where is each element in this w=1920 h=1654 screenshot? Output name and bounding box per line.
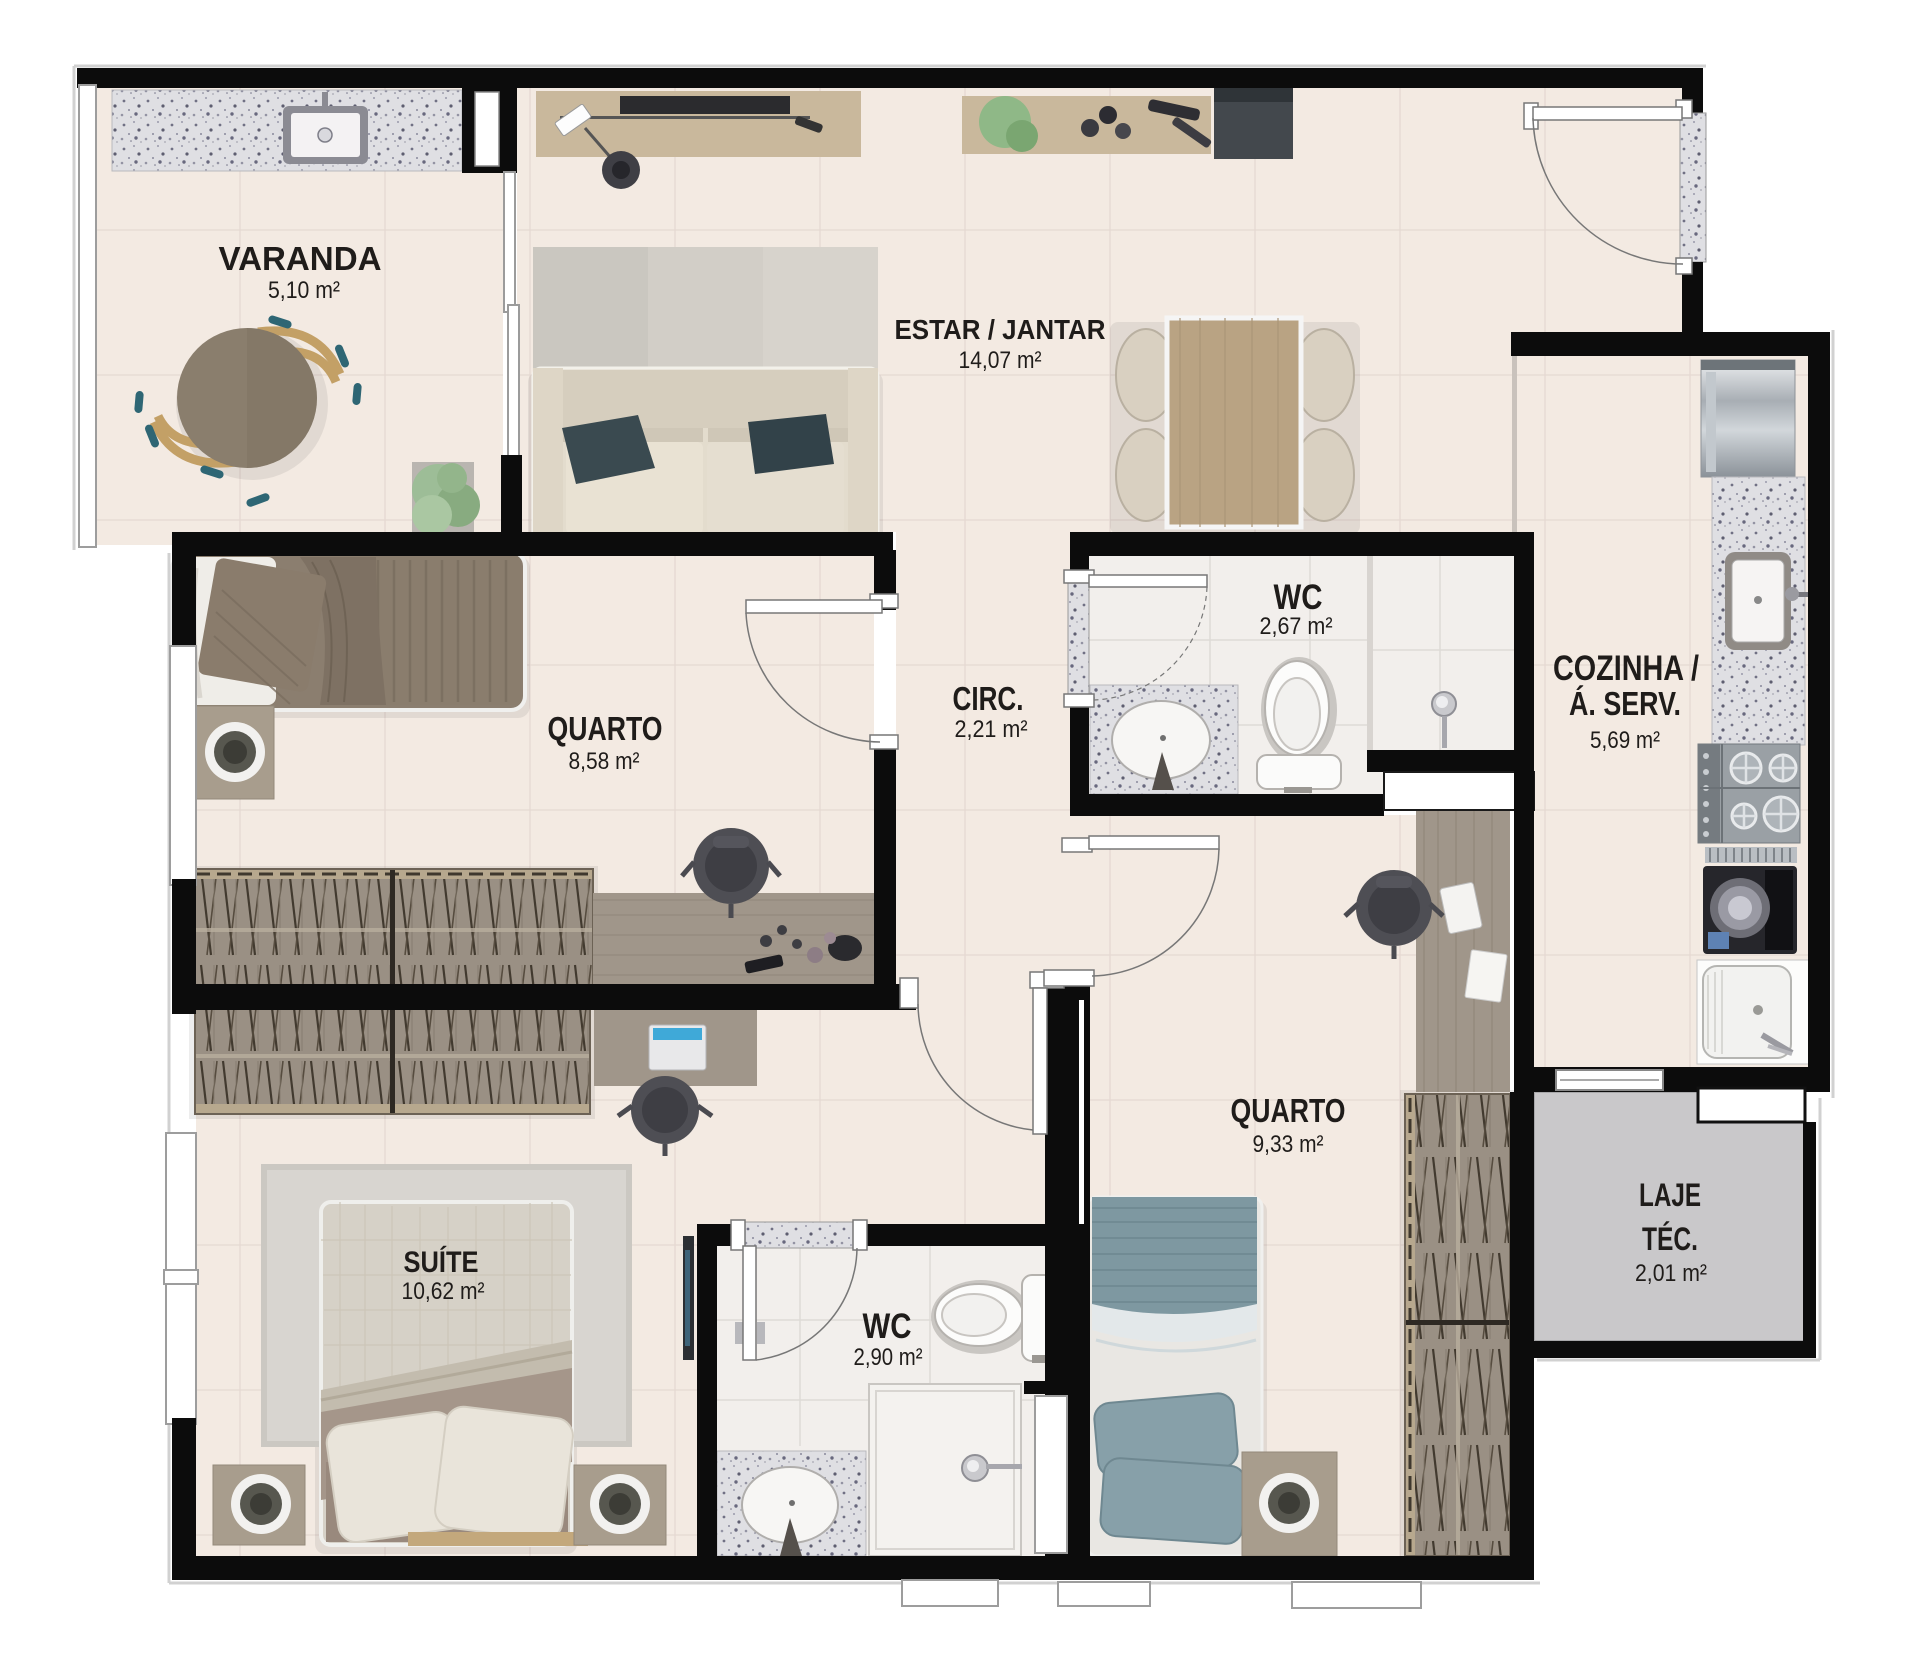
svg-text:WC: WC [1274, 578, 1323, 617]
svg-text:CIRC.: CIRC. [953, 681, 1024, 718]
svg-text:SUÍTE: SUÍTE [404, 1245, 479, 1279]
svg-text:2,67 m²: 2,67 m² [1260, 613, 1333, 640]
svg-text:5,10 m²: 5,10 m² [268, 277, 340, 304]
svg-text:ESTAR / JANTAR: ESTAR / JANTAR [895, 314, 1106, 345]
svg-text:2,01 m²: 2,01 m² [1635, 1260, 1707, 1287]
svg-text:10,62 m²: 10,62 m² [402, 1278, 485, 1305]
svg-text:COZINHA /: COZINHA / [1553, 649, 1699, 688]
svg-text:QUARTO: QUARTO [1231, 1093, 1346, 1130]
svg-text:VARANDA: VARANDA [219, 240, 382, 277]
svg-text:9,33 m²: 9,33 m² [1253, 1131, 1324, 1158]
svg-text:5,69 m²: 5,69 m² [1590, 727, 1660, 754]
svg-text:WC: WC [863, 1307, 912, 1346]
svg-text:2,21 m²: 2,21 m² [955, 716, 1028, 743]
svg-text:TÉC.: TÉC. [1642, 1221, 1698, 1257]
svg-text:LAJE: LAJE [1639, 1177, 1701, 1213]
svg-text:8,58 m²: 8,58 m² [569, 748, 640, 775]
svg-text:QUARTO: QUARTO [548, 711, 663, 748]
svg-text:14,07 m²: 14,07 m² [959, 347, 1042, 374]
svg-text:2,90 m²: 2,90 m² [854, 1344, 923, 1371]
svg-text:Á. SERV.: Á. SERV. [1569, 685, 1681, 722]
